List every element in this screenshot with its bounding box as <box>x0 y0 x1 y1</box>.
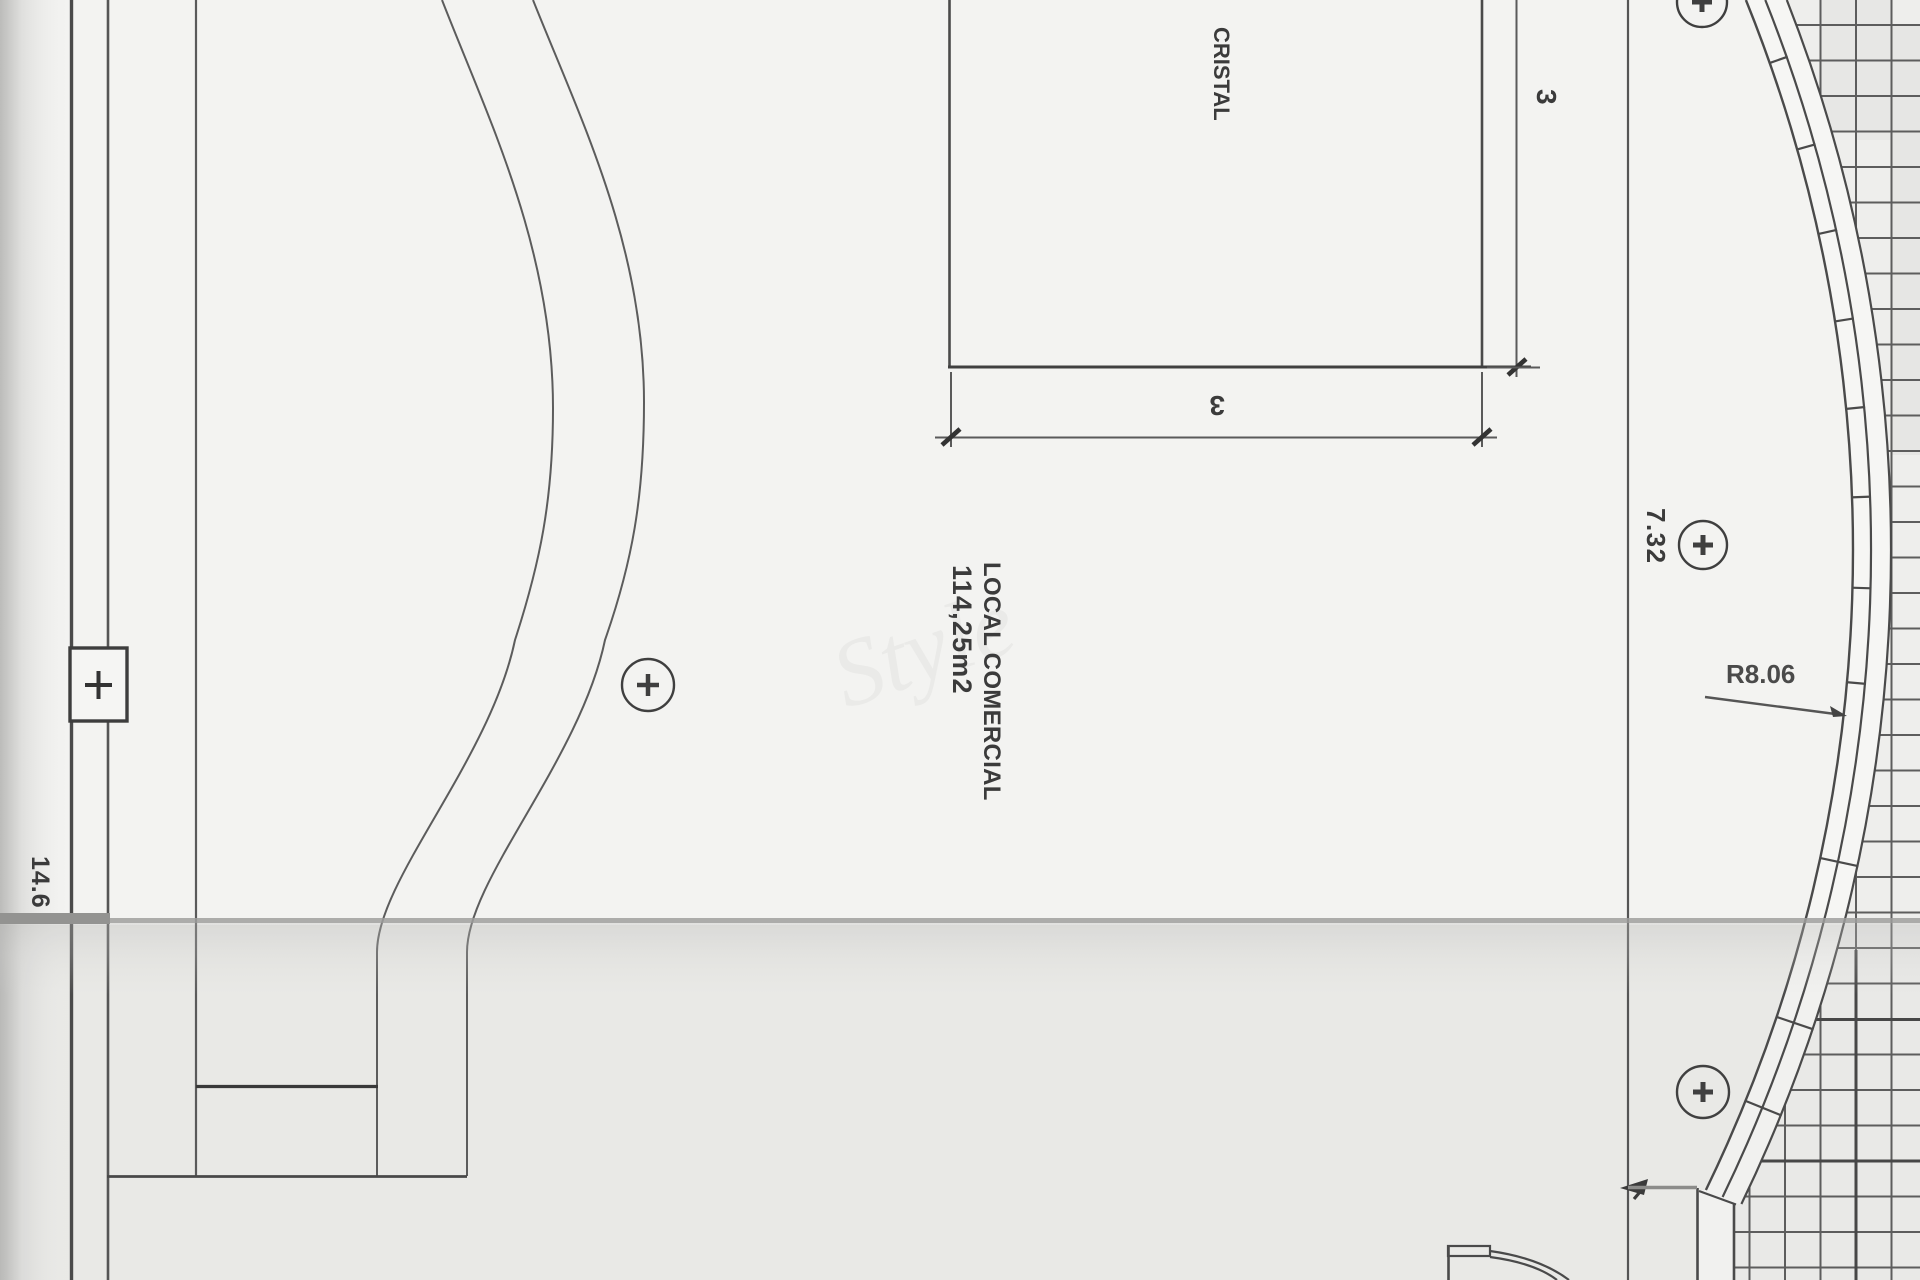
svg-text:7.32: 7.32 <box>1641 508 1671 565</box>
svg-text:CRISTAL: CRISTAL <box>1209 27 1234 121</box>
svg-text:3: 3 <box>1209 390 1225 421</box>
svg-text:3: 3 <box>1531 89 1562 105</box>
svg-text:R8.06: R8.06 <box>1726 659 1795 689</box>
svg-text:LOCAL COMERCIAL: LOCAL COMERCIAL <box>978 562 1005 801</box>
svg-text:114,25m2: 114,25m2 <box>947 565 977 695</box>
svg-text:14.6: 14.6 <box>26 856 54 909</box>
